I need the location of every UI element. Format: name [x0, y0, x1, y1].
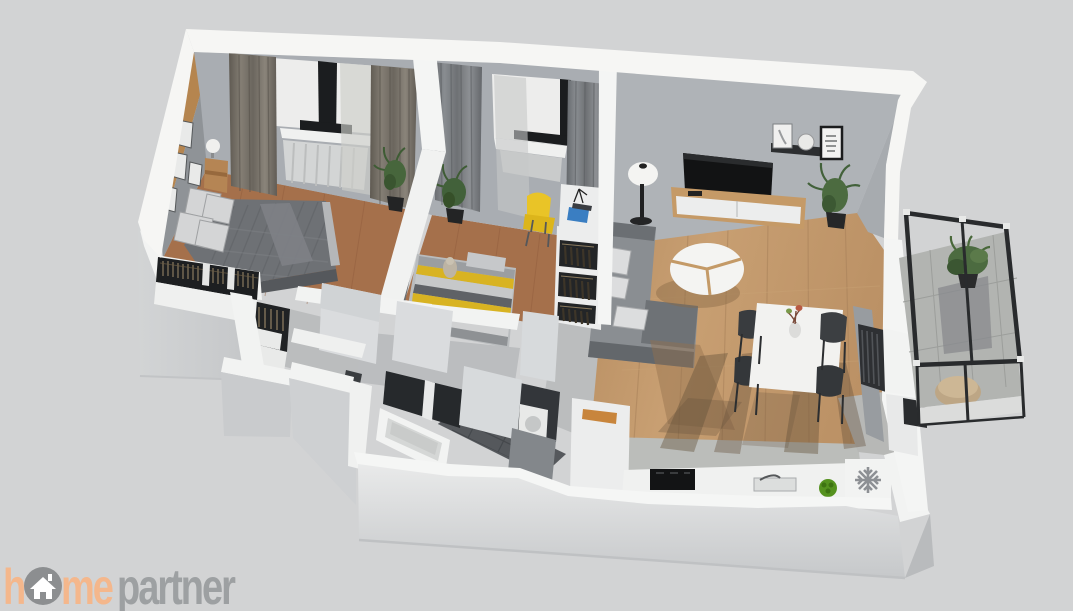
svg-text:partner: partner — [117, 560, 236, 611]
svg-text:h: h — [3, 560, 24, 611]
svg-text:me: me — [61, 560, 113, 611]
